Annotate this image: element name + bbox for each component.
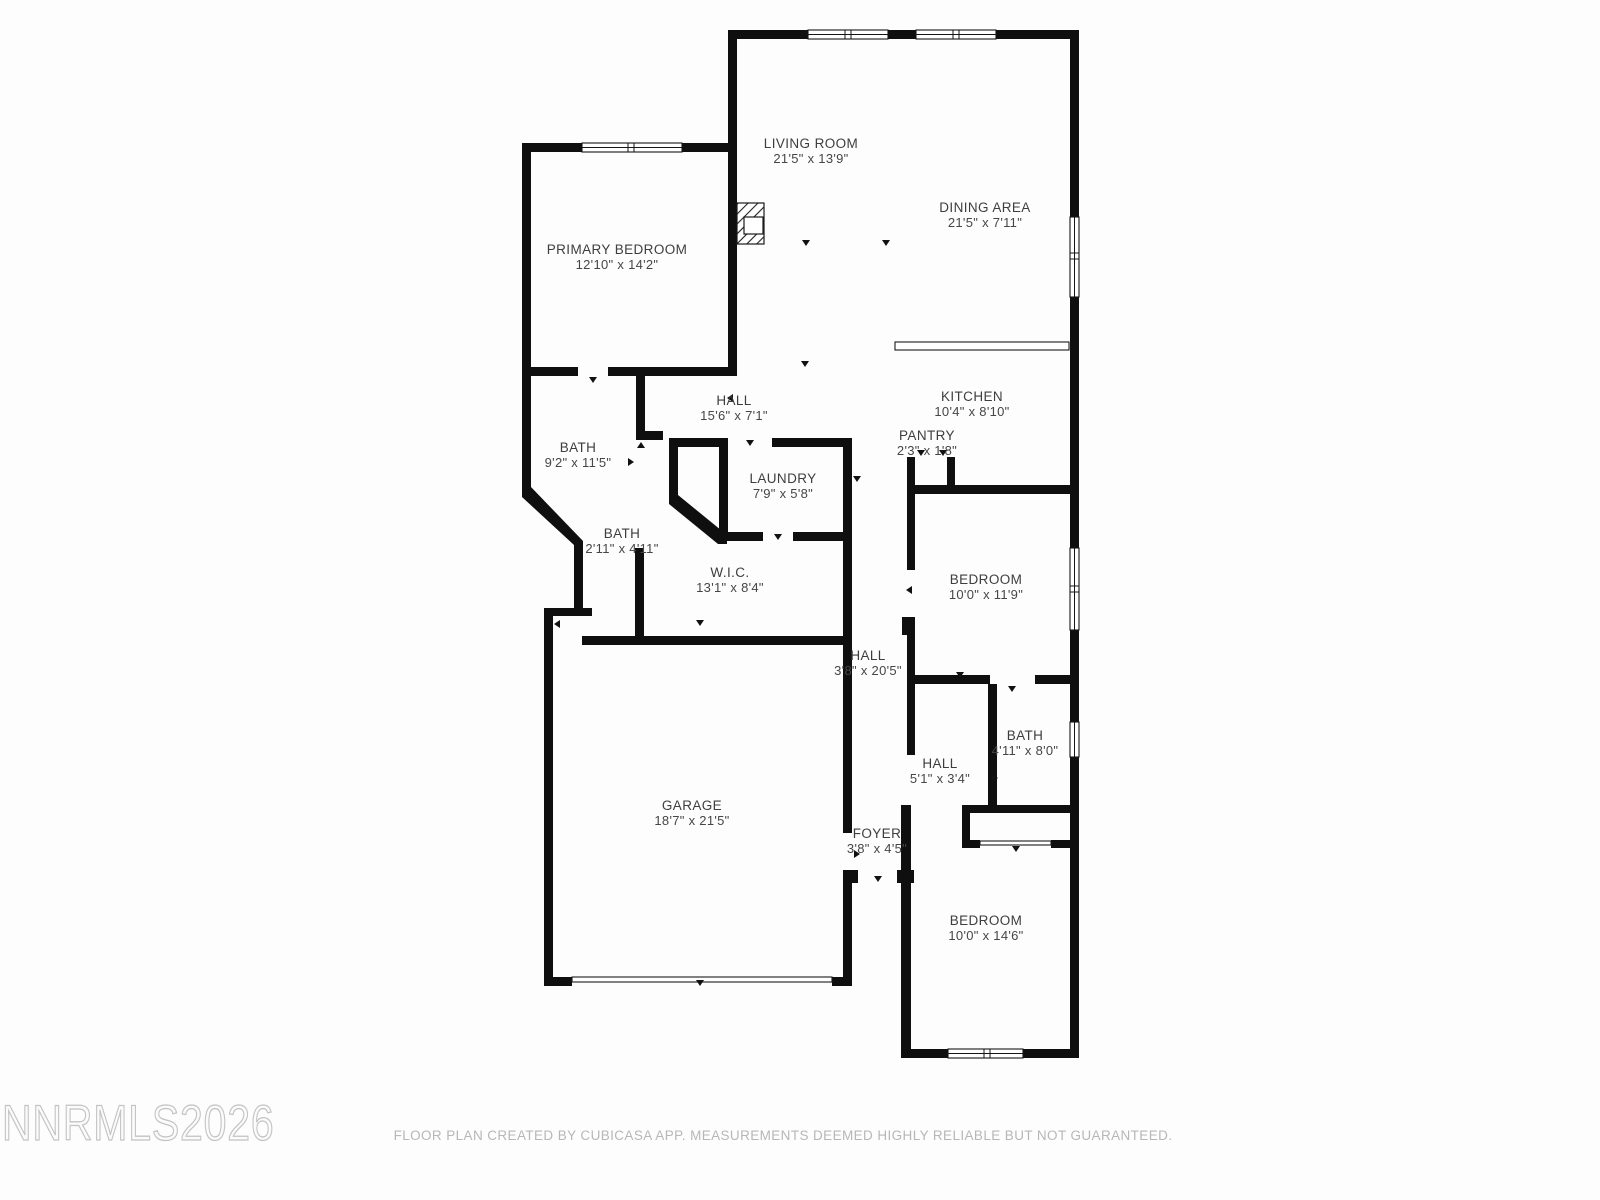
floor-plan-page: LIVING ROOM21'5" x 13'9"DINING AREA21'5"… [0, 0, 1600, 1200]
room-label-laundry: 7'9" x 5'8" [753, 486, 813, 501]
room-label-bedroom: BEDROOM [950, 913, 1023, 928]
room-label-garage: GARAGE [662, 798, 722, 813]
room-label-hall: 5'1" x 3'4" [910, 771, 970, 786]
floor-plan-drawing: LIVING ROOM21'5" x 13'9"DINING AREA21'5"… [0, 0, 1600, 1200]
room-label-w-i-c: 13'1" x 8'4" [696, 580, 764, 595]
room-label-hall: 3'8" x 20'5" [834, 663, 902, 678]
room-label-primary-bedroom: PRIMARY BEDROOM [547, 242, 688, 257]
door-swing-marks [554, 240, 1020, 986]
room-label-primary-bedroom: 12'10" x 14'2" [576, 257, 659, 272]
room-label-laundry: LAUNDRY [749, 471, 816, 486]
room-label-hall: HALL [850, 648, 885, 663]
room-label-garage: 18'7" x 21'5" [654, 813, 729, 828]
room-label-kitchen: KITCHEN [941, 389, 1003, 404]
room-label-bedroom: 10'0" x 14'6" [948, 928, 1023, 943]
room-label-bath: BATH [560, 440, 597, 455]
room-label-hall: HALL [716, 393, 751, 408]
room-label-bedroom: BEDROOM [950, 572, 1023, 587]
room-label-bath: 2'11" x 4'11" [585, 541, 658, 556]
disclaimer-text: FLOOR PLAN CREATED BY CUBICASA APP. MEAS… [0, 1128, 1566, 1143]
room-label-bath: BATH [1007, 728, 1044, 743]
room-label-kitchen: 10'4" x 8'10" [934, 404, 1009, 419]
room-label-pantry: 2'3" x 1'8" [897, 443, 957, 458]
room-label-dining-area: 21'5" x 7'11" [948, 215, 1022, 230]
room-label-bath: 4'11" x 8'0" [992, 743, 1059, 758]
room-label-bath: BATH [604, 526, 641, 541]
room-label-bedroom: 10'0" x 11'9" [949, 587, 1023, 602]
room-label-living-room: LIVING ROOM [764, 136, 858, 151]
fireplace [737, 203, 764, 244]
room-label-pantry: PANTRY [899, 428, 955, 443]
room-label-dining-area: DINING AREA [939, 200, 1030, 215]
room-label-bath: 9'2" x 11'5" [545, 455, 612, 470]
room-label-w-i-c: W.I.C. [710, 565, 749, 580]
closet-sliding-door [980, 841, 1051, 845]
room-label-foyer: 3'8" x 4'5" [847, 841, 907, 856]
room-label-foyer: FOYER [853, 826, 902, 841]
room-label-hall: 15'6" x 7'1" [700, 408, 768, 423]
kitchen-counter [895, 342, 1069, 350]
room-label-living-room: 21'5" x 13'9" [773, 151, 848, 166]
room-label-hall: HALL [922, 756, 957, 771]
